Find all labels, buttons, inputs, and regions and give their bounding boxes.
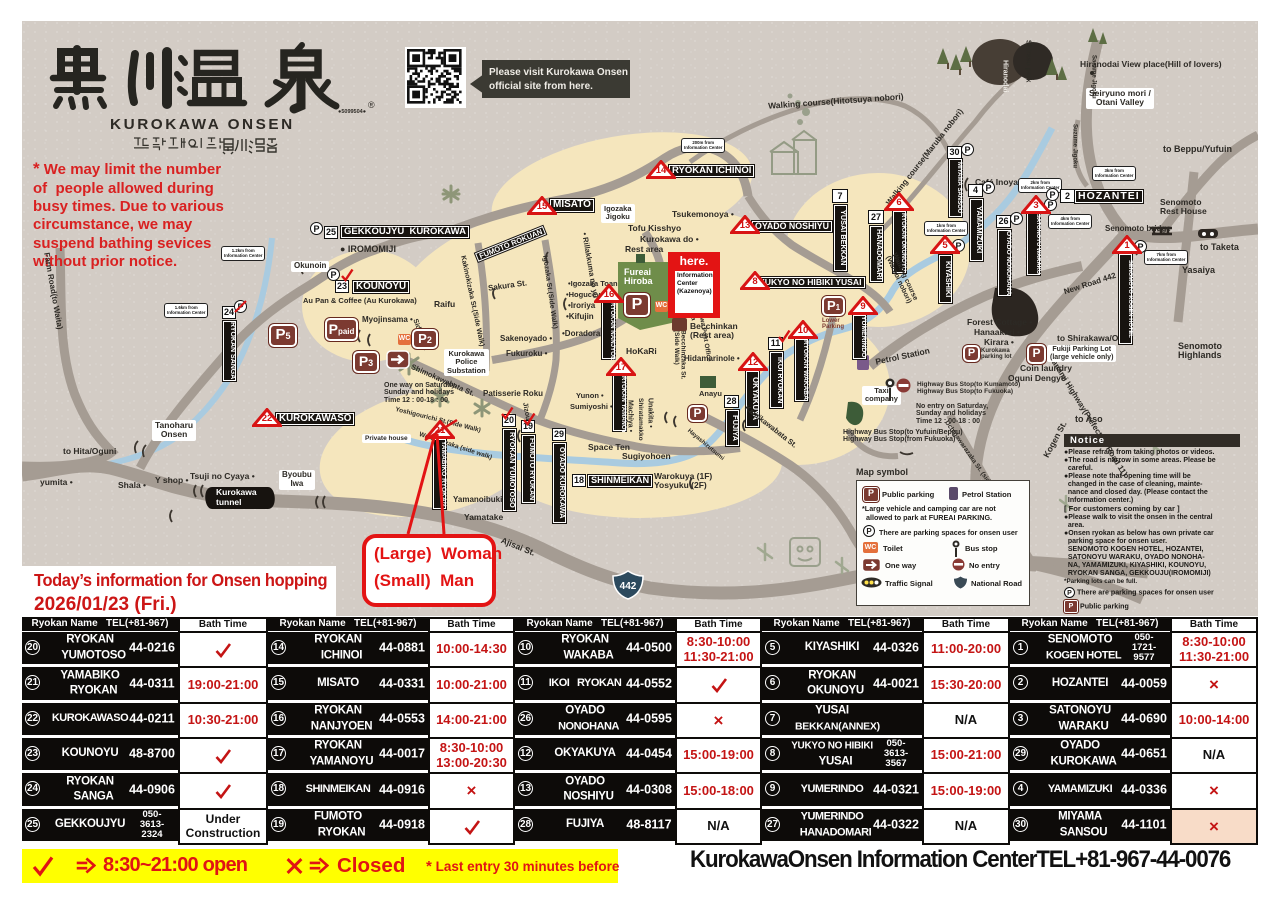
svg-text:442: 442 [620,581,637,592]
